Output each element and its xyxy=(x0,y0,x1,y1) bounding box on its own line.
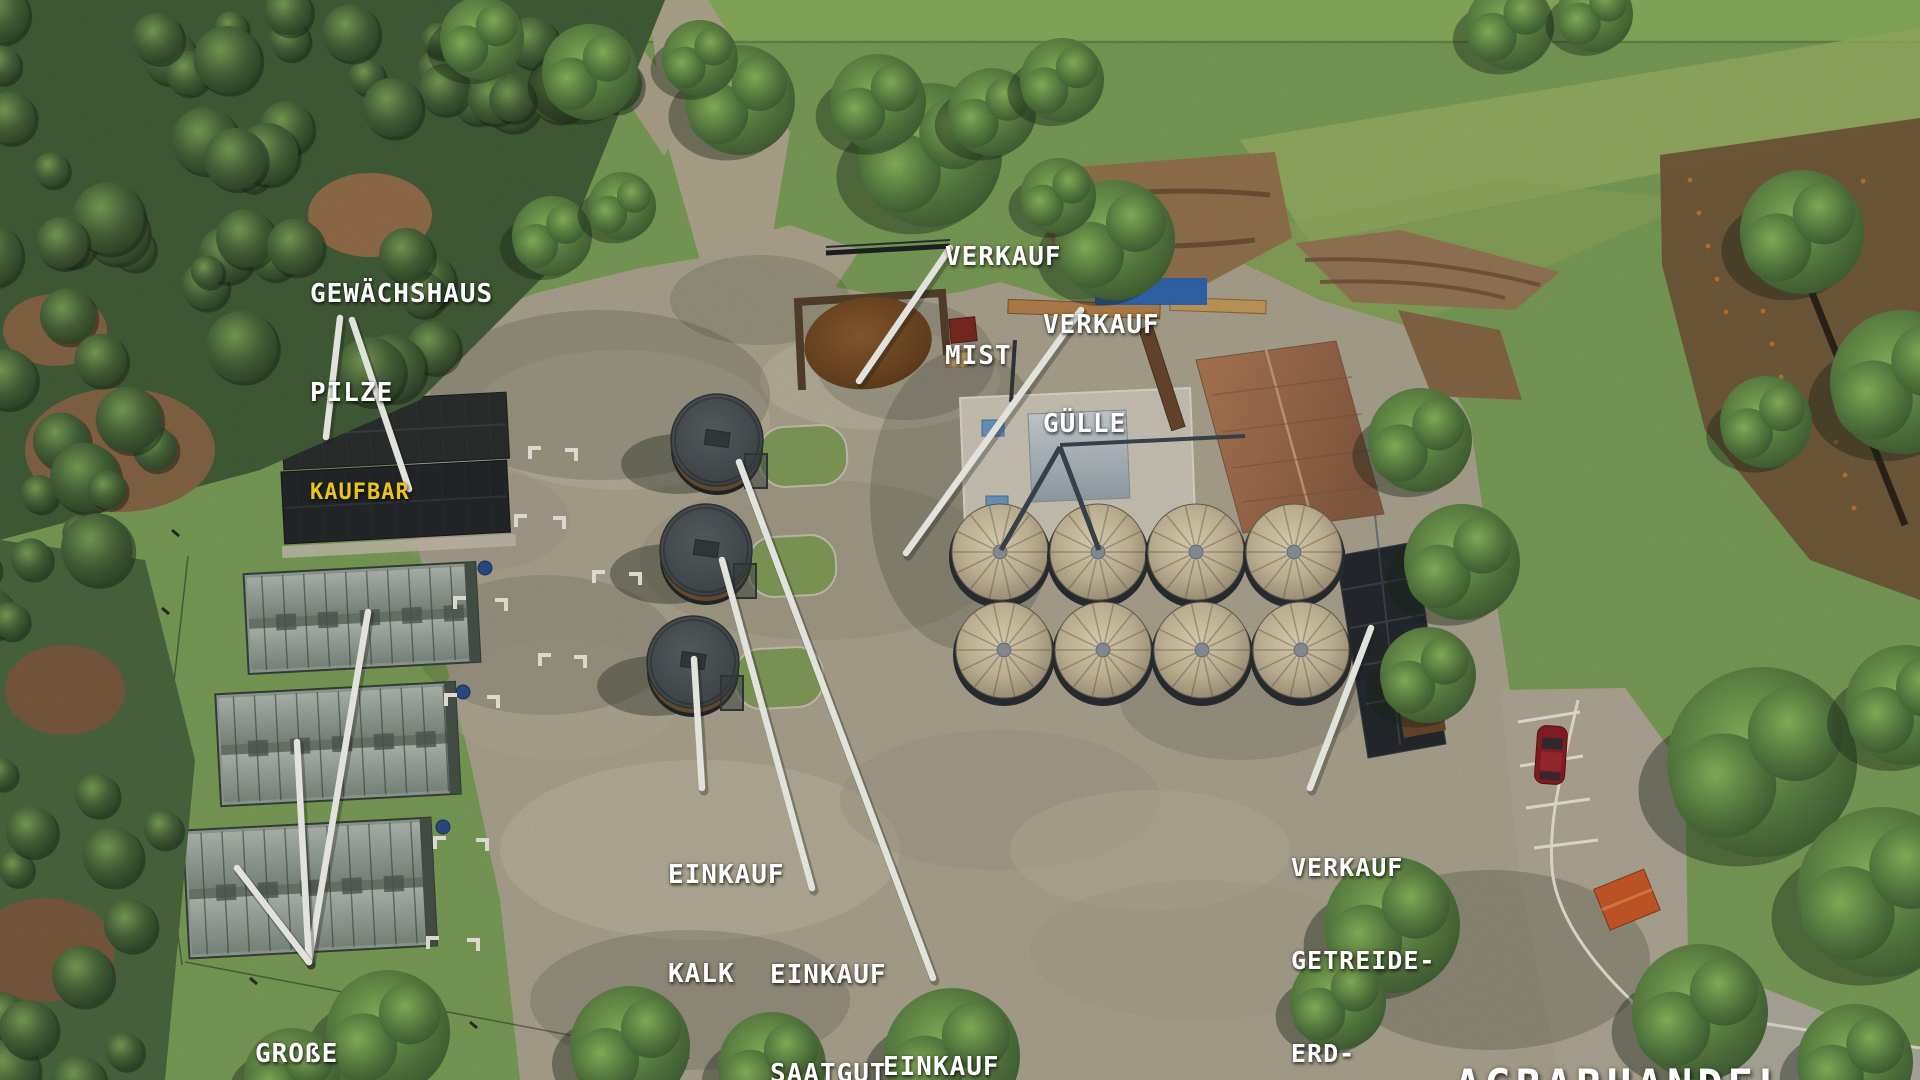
label-glass-greenhouses: GROßE GLASGEWÄCHSHÄUSER SEPERAT KAUFBAR xyxy=(255,972,538,1080)
label-sell-slurry: VERKAUF GÜLLE xyxy=(1043,243,1160,474)
map-screenshot: GEWÄCHSHAUS PILZE KAUFBAR VERKAUF MIST V… xyxy=(0,0,1920,1080)
label-buy-mineral-fertilizer: EINKAUF MINERALDÜNGER xyxy=(883,985,1100,1080)
label-buy-seed: EINKAUF SAATGUT xyxy=(770,893,887,1080)
label-line: EINKAUF xyxy=(770,959,887,992)
label-line: PILZE xyxy=(310,377,493,410)
label-mushroom-greenhouse: GEWÄCHSHAUS PILZE KAUFBAR xyxy=(310,212,493,541)
label-line: KALK xyxy=(668,958,785,991)
label-line: EINKAUF xyxy=(668,859,785,892)
label-note-buyable: KAUFBAR xyxy=(310,478,493,508)
map-title: AGRARHANDEL MEYER UND MAYER xyxy=(1455,950,1909,1080)
aerial-map-scene xyxy=(0,0,1920,1080)
label-line: VERKAUF xyxy=(1043,309,1160,342)
map-title-line1: AGRARHANDEL xyxy=(1455,1058,1909,1080)
label-line: GÜLLE xyxy=(1043,408,1160,441)
label-line: GROßE xyxy=(255,1038,538,1071)
label-line: EINKAUF xyxy=(883,1051,1100,1080)
label-line: SAATGUT xyxy=(770,1058,887,1080)
label-line: GEWÄCHSHAUS xyxy=(310,278,493,311)
label-buy-lime: EINKAUF KALK xyxy=(668,793,785,1024)
label-line: VERKAUF xyxy=(1291,852,1500,883)
texture-overlay xyxy=(0,0,1920,1080)
